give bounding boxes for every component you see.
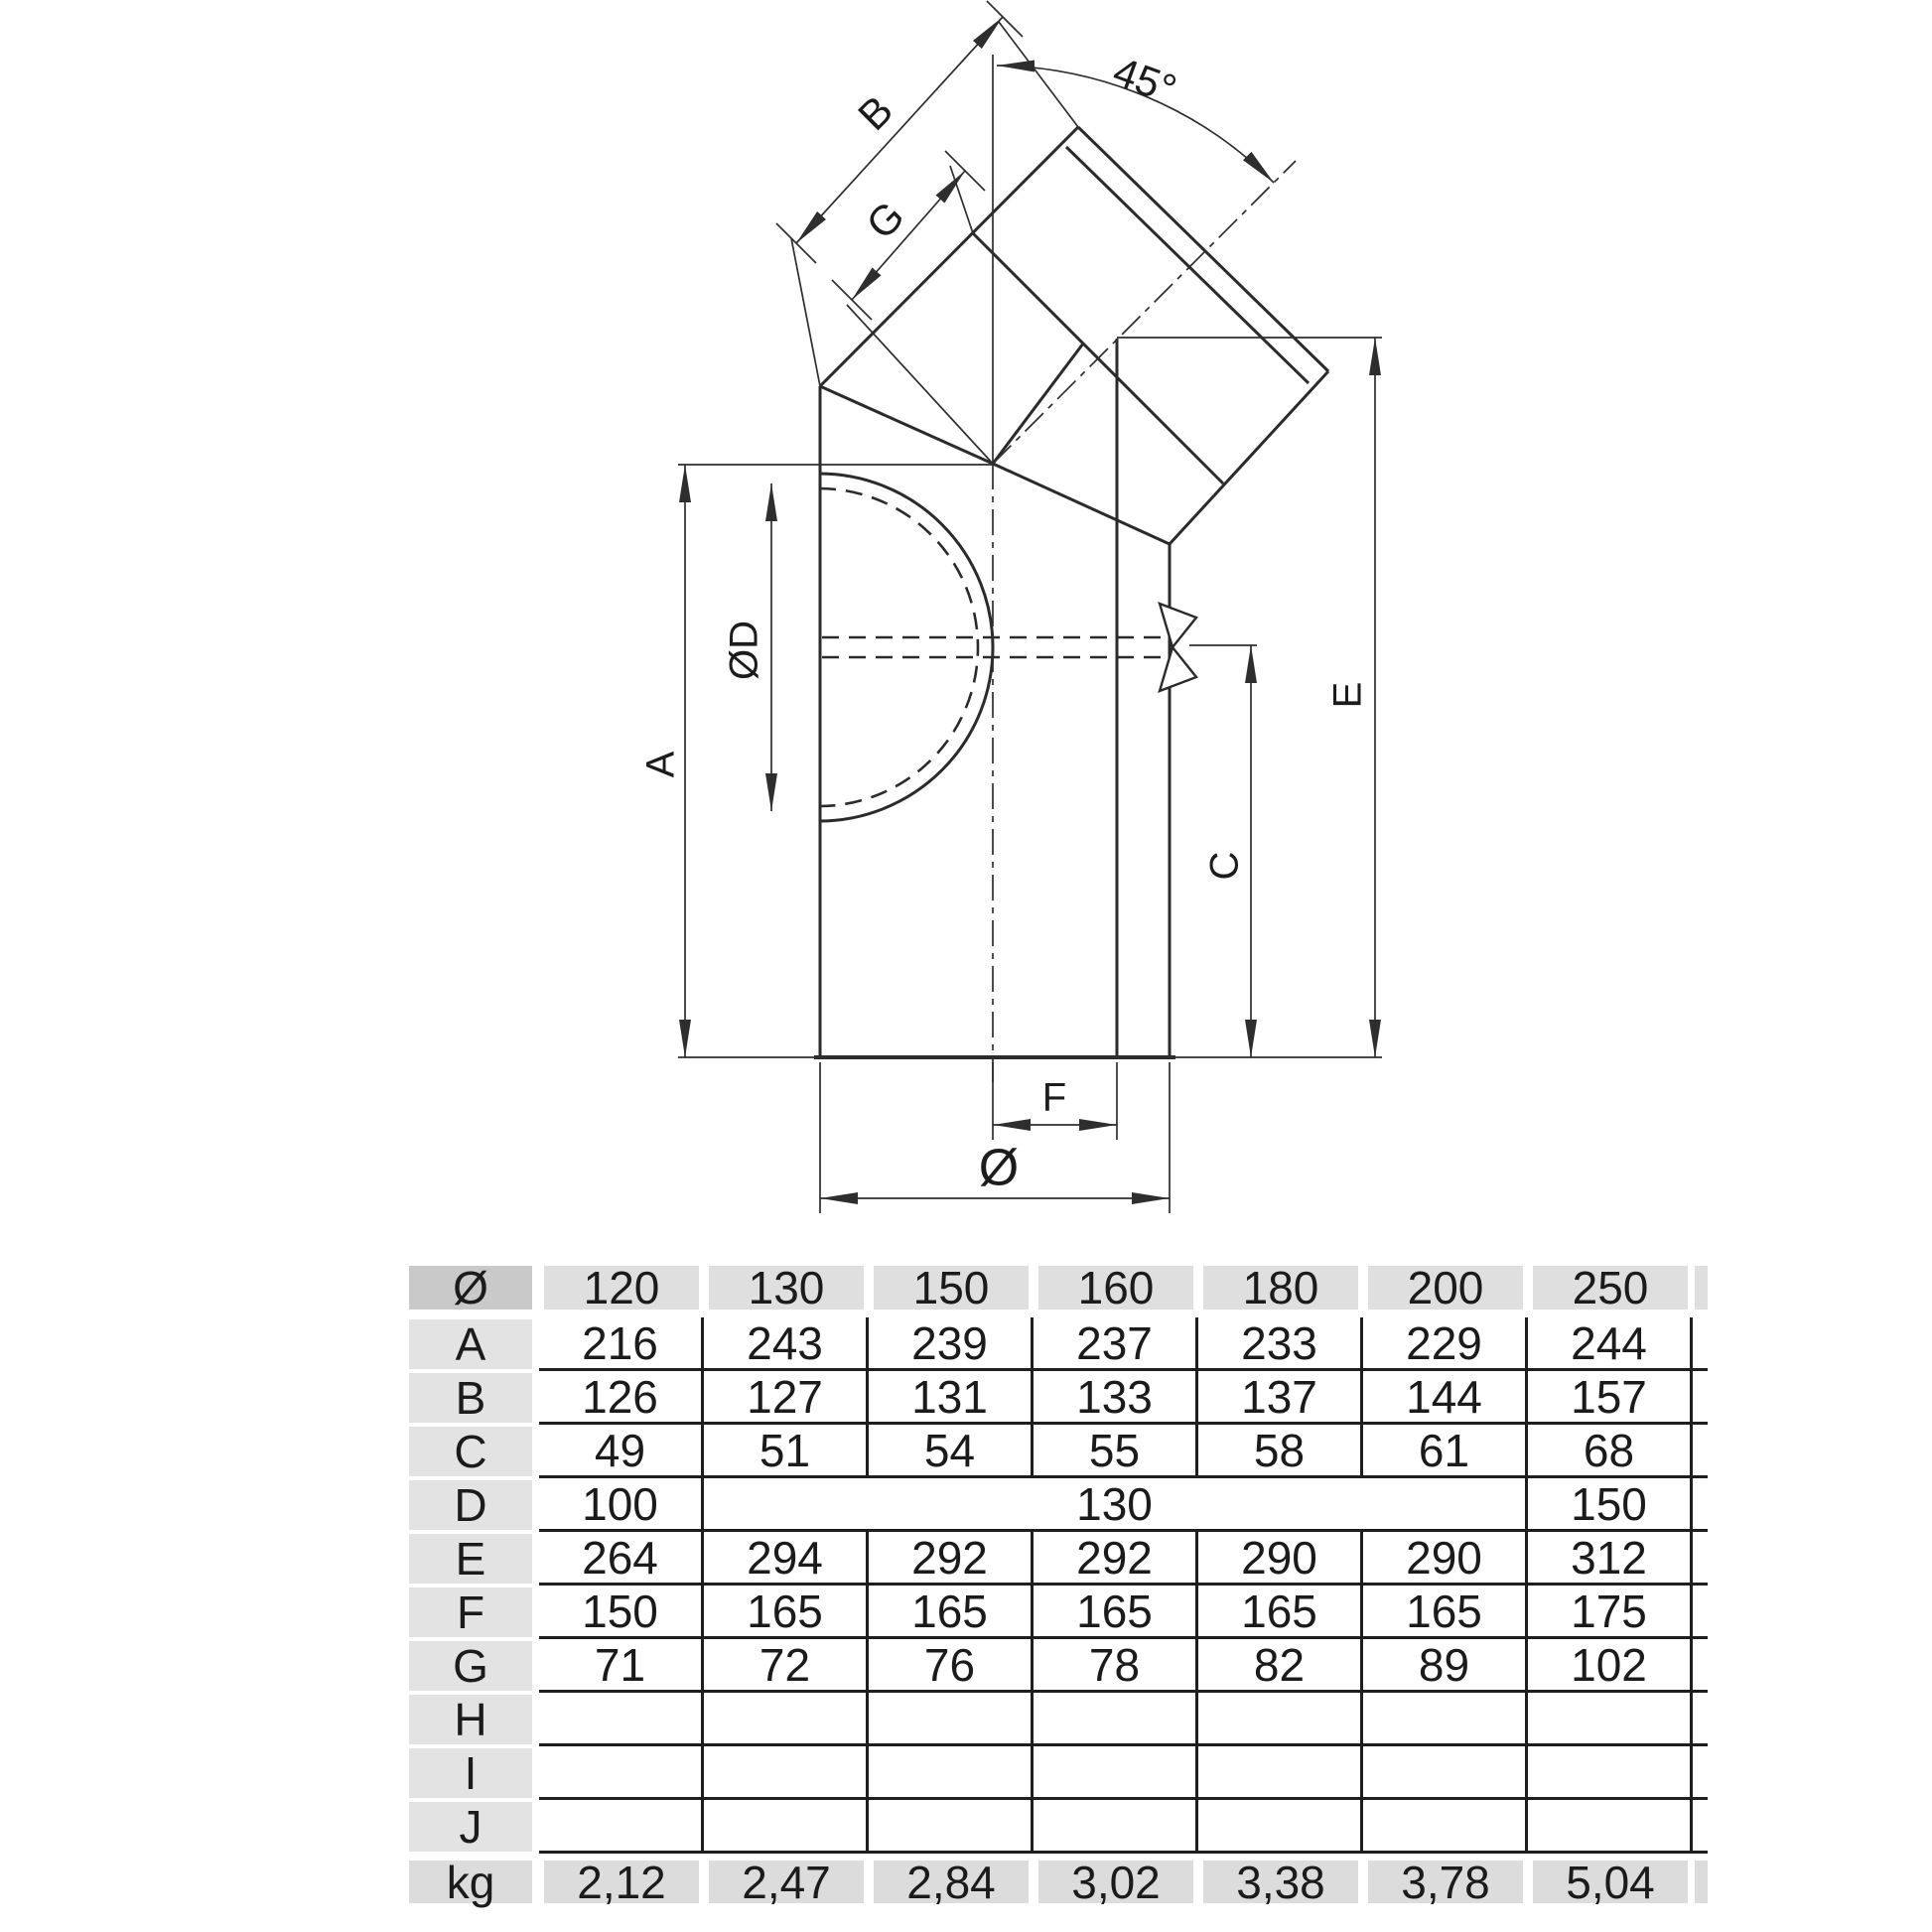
weight-cell: 3,78: [1368, 1861, 1523, 1903]
table-cell: [1363, 1693, 1528, 1743]
table-row: A216243239237233229244: [409, 1317, 1708, 1371]
column-gutter: [532, 1478, 539, 1532]
table-cell: 102: [1528, 1639, 1693, 1690]
table-data-area: 216243239237233229244: [539, 1317, 1708, 1371]
weight-cell: 2,47: [709, 1861, 864, 1903]
row-label: F: [409, 1587, 532, 1637]
table-header-row: Ø120130150160180200250: [409, 1264, 1708, 1311]
table-cell: 100: [539, 1478, 704, 1529]
table-cell: 165: [869, 1586, 1034, 1636]
table-data-area: 264294292292290290312: [539, 1532, 1708, 1586]
dim-label-f: F: [1042, 1076, 1066, 1120]
row-label: G: [409, 1641, 532, 1691]
table-cell: 244: [1528, 1317, 1693, 1368]
column-gutter: [532, 1693, 539, 1746]
table-cell: 175: [1528, 1586, 1693, 1636]
row-label: B: [409, 1373, 532, 1423]
dim-label-d: ØD: [723, 621, 766, 680]
dim-label-b: B: [849, 86, 901, 139]
table-cell: 126: [539, 1371, 704, 1422]
table-cell: [1198, 1693, 1363, 1743]
weight-cell: 3,02: [1038, 1861, 1193, 1903]
table-cell: 264: [539, 1532, 704, 1583]
column-gutter: [532, 1317, 539, 1371]
table-cell: 58: [1198, 1425, 1363, 1475]
table-edge-sliver: [1693, 1639, 1708, 1690]
table-cell: [1198, 1800, 1363, 1851]
table-row: C49515455586168: [409, 1425, 1708, 1478]
table-cell: 216: [539, 1317, 704, 1368]
column-header: 130: [709, 1266, 864, 1310]
table-row: J: [409, 1800, 1708, 1854]
table-cell: 89: [1363, 1639, 1528, 1690]
row-label: D: [409, 1480, 532, 1530]
table-cell: [1528, 1746, 1693, 1797]
table-cell: [704, 1800, 869, 1851]
dim-line-B: [796, 17, 1003, 243]
crimp-mark: [1160, 647, 1196, 691]
table-cell: 137: [1198, 1371, 1363, 1422]
table-edge-sliver: [1695, 1266, 1708, 1310]
table-cell: 239: [869, 1317, 1034, 1368]
column-header: 120: [544, 1266, 699, 1310]
dim-label-diameter: Ø: [979, 1140, 1019, 1197]
table-cell: [704, 1746, 869, 1797]
column-gutter: [532, 1746, 539, 1800]
weight-cell: 2,12: [544, 1861, 699, 1903]
table-data-area: [539, 1746, 1708, 1800]
table-data-area: [539, 1693, 1708, 1746]
table-row: D100130150: [409, 1478, 1708, 1532]
row-label: C: [409, 1427, 532, 1476]
table-cell: 130: [704, 1478, 1528, 1529]
table-edge-sliver: [1693, 1425, 1708, 1475]
table-cell: 68: [1528, 1425, 1693, 1475]
table-footer-row: kg2,122,472,843,023,383,785,04: [409, 1859, 1708, 1905]
column-header: 150: [874, 1266, 1029, 1310]
table-cell: [869, 1693, 1034, 1743]
weight-row-label: kg: [409, 1861, 532, 1903]
row-label: A: [409, 1319, 532, 1369]
dimension-table: Ø120130150160180200250A21624323923723322…: [409, 1264, 1708, 1905]
table-cell: 127: [704, 1371, 869, 1422]
table-edge-sliver: [1693, 1317, 1708, 1368]
table-cell: [1528, 1800, 1693, 1851]
column-gutter: [532, 1639, 539, 1693]
table-cell: 243: [704, 1317, 869, 1368]
table-cell: 71: [539, 1639, 704, 1690]
column-gutter: [532, 1425, 539, 1478]
table-cell: [539, 1693, 704, 1743]
table-row: E264294292292290290312: [409, 1532, 1708, 1586]
table-edge-sliver: [1695, 1861, 1708, 1903]
table-cell: 312: [1528, 1532, 1693, 1583]
table-cell: [539, 1800, 704, 1851]
extension-lines: [678, 1, 1382, 1213]
table-edge-sliver: [1693, 1532, 1708, 1583]
dim-label-e: E: [1326, 682, 1370, 709]
table-cell: 292: [869, 1532, 1034, 1583]
table-cell: 229: [1363, 1317, 1528, 1368]
dim-label-c: C: [1203, 852, 1247, 881]
column-header: 200: [1368, 1266, 1523, 1310]
column-gutter: [532, 1586, 539, 1639]
table-edge-sliver: [1693, 1371, 1708, 1422]
dim-label-angle: 45°: [1107, 48, 1182, 113]
table-cell: [1363, 1800, 1528, 1851]
table-cell: 290: [1198, 1532, 1363, 1583]
table-cell: 233: [1198, 1317, 1363, 1368]
table-cell: 144: [1363, 1371, 1528, 1422]
dim-line-G: [852, 171, 965, 300]
table-data-area: 49515455586168: [539, 1425, 1708, 1478]
table-cell: 157: [1528, 1371, 1693, 1422]
table-cell: [869, 1800, 1034, 1851]
table-row: B126127131133137144157: [409, 1371, 1708, 1425]
table-cell: 78: [1034, 1639, 1198, 1690]
column-header: 180: [1203, 1266, 1358, 1310]
column-header: 250: [1533, 1266, 1688, 1310]
column-gutter: [532, 1371, 539, 1425]
table-cell: 150: [539, 1586, 704, 1636]
table-cell: [1528, 1693, 1693, 1743]
table-cell: 51: [704, 1425, 869, 1475]
column-gutter: [532, 1532, 539, 1586]
table-data-area: 150165165165165165175: [539, 1586, 1708, 1639]
table-data-area: 120130150160180200250: [539, 1264, 1708, 1311]
row-label: H: [409, 1695, 532, 1744]
table-data-area: [539, 1800, 1708, 1854]
row-label: J: [409, 1802, 532, 1852]
table-cell: [704, 1693, 869, 1743]
table-data-area: 126127131133137144157: [539, 1371, 1708, 1425]
table-cell: [539, 1746, 704, 1797]
table-cell: 82: [1198, 1639, 1363, 1690]
table-cell: 133: [1034, 1371, 1198, 1422]
column-gutter: [532, 1264, 539, 1311]
table-data-area: 717276788289102: [539, 1639, 1708, 1693]
row-label: I: [409, 1748, 532, 1798]
weight-cell: 2,84: [874, 1861, 1029, 1903]
table-cell: 61: [1363, 1425, 1528, 1475]
table-edge-sliver: [1693, 1693, 1708, 1743]
weight-cell: 3,38: [1203, 1861, 1358, 1903]
dim-label-a: A: [639, 751, 683, 777]
pipe-body: [814, 339, 1175, 1057]
table-cell: 237: [1034, 1317, 1198, 1368]
inner-opening: [819, 474, 1196, 821]
table-cell: [869, 1746, 1034, 1797]
table-corner-header: Ø: [409, 1266, 532, 1310]
table-cell: 49: [539, 1425, 704, 1475]
table-edge-sliver: [1693, 1746, 1708, 1797]
table-cell: 72: [704, 1639, 869, 1690]
table-cell: [1034, 1693, 1198, 1743]
table-data-area: 100130150: [539, 1478, 1708, 1532]
table-cell: 165: [1198, 1586, 1363, 1636]
table-edge-sliver: [1693, 1478, 1708, 1529]
table-cell: 165: [1034, 1586, 1198, 1636]
crimp-mark: [1160, 604, 1196, 647]
table-cell: 150: [1528, 1478, 1693, 1529]
table-edge-sliver: [1693, 1586, 1708, 1636]
table-cell: [1198, 1746, 1363, 1797]
table-cell: 165: [704, 1586, 869, 1636]
column-gutter: [532, 1800, 539, 1854]
technical-drawing: A ØD B G 45° E C F Ø: [0, 0, 1932, 1261]
table-row: F150165165165165165175: [409, 1586, 1708, 1639]
table-cell: 54: [869, 1425, 1034, 1475]
table-cell: 292: [1034, 1532, 1198, 1583]
table-cell: 290: [1363, 1532, 1528, 1583]
table-cell: 165: [1363, 1586, 1528, 1636]
table-cell: [1363, 1746, 1528, 1797]
table-cell: 294: [704, 1532, 869, 1583]
row-label: E: [409, 1534, 532, 1584]
table-cell: 76: [869, 1639, 1034, 1690]
table-data-area: 2,122,472,843,023,383,785,04: [539, 1859, 1708, 1905]
table-edge-sliver: [1693, 1800, 1708, 1851]
table-cell: 55: [1034, 1425, 1198, 1475]
branch-socket: [820, 127, 1328, 544]
table-row: H: [409, 1693, 1708, 1746]
table-row: I: [409, 1746, 1708, 1800]
weight-cell: 5,04: [1533, 1861, 1688, 1903]
dimension-lines: [685, 17, 1375, 1198]
table-cell: [1034, 1800, 1198, 1851]
table-cell: 131: [869, 1371, 1034, 1422]
table-cell: [1034, 1746, 1198, 1797]
column-header: 160: [1038, 1266, 1193, 1310]
column-gutter: [532, 1859, 539, 1905]
table-row: G717276788289102: [409, 1639, 1708, 1693]
